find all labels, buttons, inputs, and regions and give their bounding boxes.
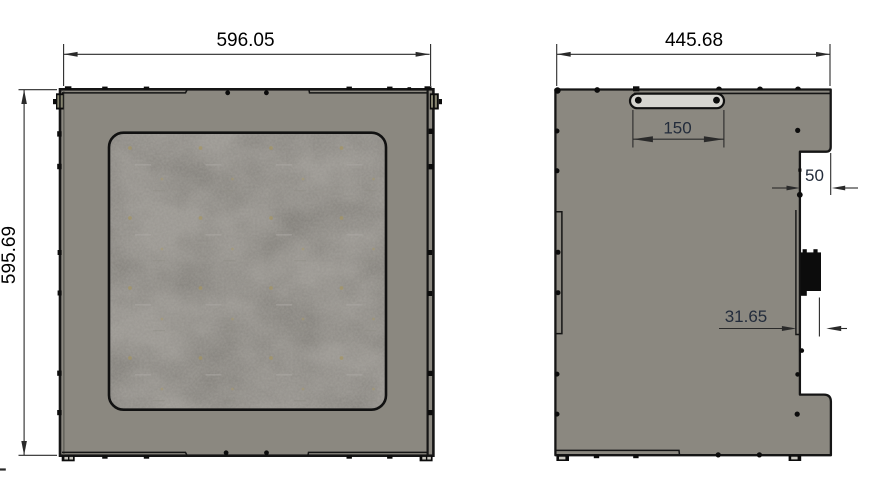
svg-text:31.65: 31.65	[725, 307, 768, 326]
svg-text:50: 50	[805, 166, 824, 185]
svg-text:596.05: 596.05	[216, 30, 274, 51]
svg-text:150: 150	[663, 119, 691, 138]
svg-text:595.69: 595.69	[0, 226, 20, 284]
svg-text:445.68: 445.68	[665, 30, 723, 51]
